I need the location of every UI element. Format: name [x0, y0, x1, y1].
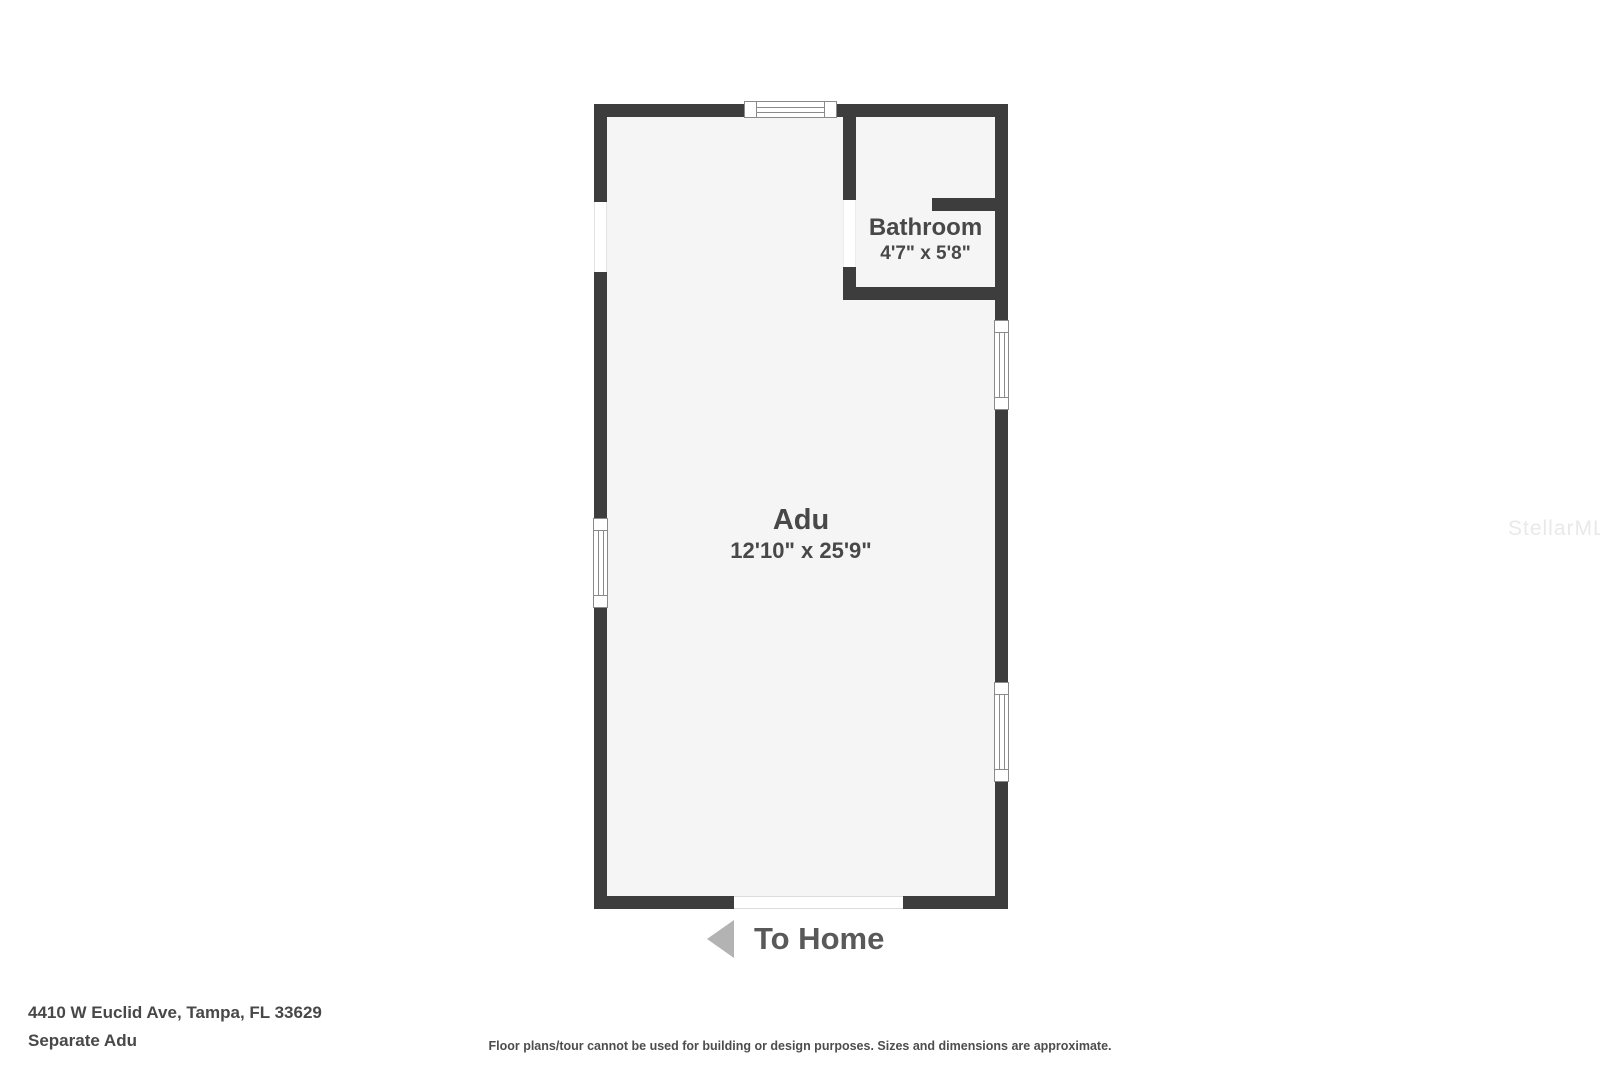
to-home-indicator: To Home	[707, 920, 884, 958]
room-dimensions: 12'10" x 25'9"	[607, 538, 995, 564]
room-dimensions: 4'7" x 5'8"	[856, 242, 995, 265]
window-sill	[995, 397, 1008, 398]
door-opening	[734, 896, 903, 909]
window-pane	[598, 531, 604, 595]
window-pane	[757, 107, 824, 113]
footer-address: 4410 W Euclid Ave, Tampa, FL 33629	[28, 1003, 322, 1023]
door-opening	[594, 202, 607, 272]
wall-segment	[843, 117, 856, 200]
floor-plan-image: Adu 12'10" x 25'9" Bathroom 4'7" x 5'8" …	[0, 0, 1600, 1066]
stellar-mls-watermark: StellarMLS	[1508, 517, 1600, 541]
window-sill	[995, 769, 1008, 770]
window-symbol	[744, 101, 837, 118]
room-label-bathroom: Bathroom 4'7" x 5'8"	[856, 214, 995, 265]
window-symbol	[994, 682, 1009, 782]
footer-disclaimer: Floor plans/tour cannot be used for buil…	[0, 1039, 1600, 1053]
door-opening	[843, 200, 856, 267]
window-symbol	[994, 320, 1009, 410]
window-pane	[999, 333, 1005, 397]
floor-plan-outline: Adu 12'10" x 25'9" Bathroom 4'7" x 5'8"	[594, 104, 1008, 909]
to-home-label: To Home	[754, 920, 884, 958]
room-name: Adu	[607, 504, 995, 536]
window-sill	[824, 102, 825, 117]
window-pane	[999, 695, 1005, 769]
wall-segment	[932, 198, 995, 211]
window-symbol	[593, 518, 608, 608]
room-label-adu: Adu 12'10" x 25'9"	[607, 504, 995, 564]
arrow-left-icon	[707, 920, 734, 958]
window-sill	[594, 595, 607, 596]
wall-segment	[843, 287, 995, 300]
room-name: Bathroom	[856, 214, 995, 242]
